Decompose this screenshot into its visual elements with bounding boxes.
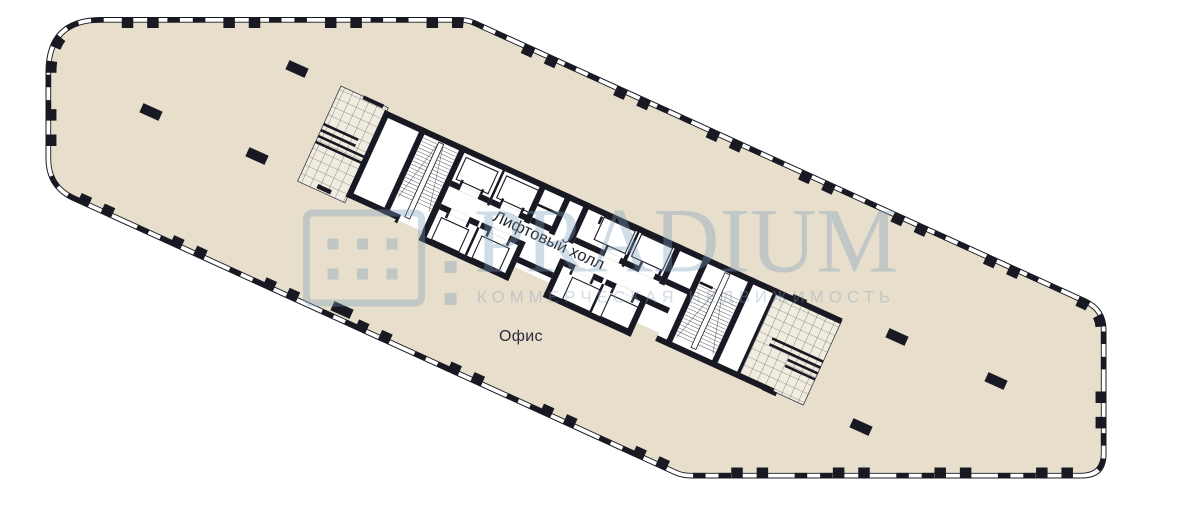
svg-text:КОММЕРЧЕСКАЯ НЕДВИЖИМОСТЬ: КОММЕРЧЕСКАЯ НЕДВИЖИМОСТЬ: [477, 289, 895, 307]
svg-text:Офис: Офис: [499, 328, 543, 345]
svg-text:PRADIUM: PRADIUM: [474, 190, 898, 292]
